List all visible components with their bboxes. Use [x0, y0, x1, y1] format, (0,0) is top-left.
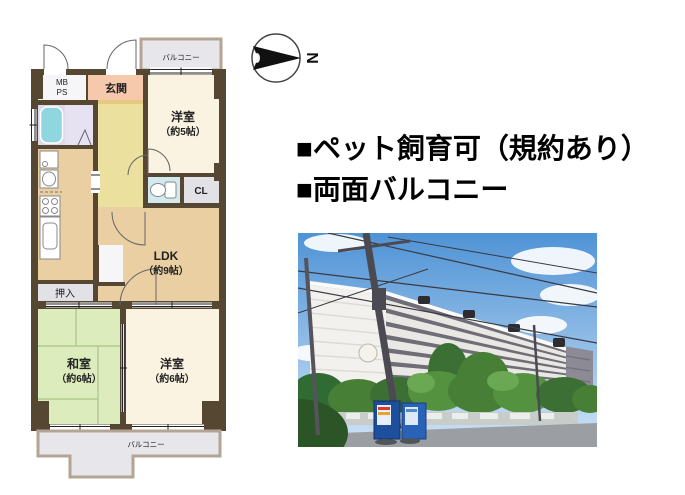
- toilet: [165, 182, 176, 198]
- room6-size: （約6帖）: [149, 372, 195, 385]
- highlight-bullets: ■ペット飼育可（規約あり） ■両面バルコニー: [296, 128, 684, 210]
- room6-name: 洋室: [160, 356, 184, 371]
- north-label: N: [303, 52, 320, 64]
- room-western-5: [148, 75, 219, 173]
- vending-machines: [374, 401, 426, 445]
- stove: [40, 196, 60, 216]
- oshiire-label: 押入: [55, 287, 75, 300]
- highlight-pets: ■ペット飼育可（規約あり）: [296, 128, 684, 169]
- building-photo: [298, 233, 597, 447]
- satellite-dish: [359, 344, 377, 362]
- room5-name: 洋室: [171, 109, 195, 124]
- ldk-closet: [99, 245, 123, 282]
- room5-size: （約5帖）: [160, 125, 206, 138]
- washitsu-size: （約6帖）: [56, 372, 102, 385]
- compass: N: [245, 30, 325, 92]
- highlight-balcony: ■両面バルコニー: [296, 169, 684, 210]
- balcony-bottom: バルコニー: [38, 431, 220, 477]
- ldk-name: LDK: [154, 249, 179, 263]
- bathtub: [41, 107, 63, 143]
- ldk-size: （約9帖）: [143, 264, 189, 277]
- balcony-bottom-label: バルコニー: [127, 440, 164, 449]
- balcony-top: バルコニー: [141, 39, 221, 70]
- floorplan: バルコニー: [28, 35, 230, 485]
- mb-label: MB: [56, 78, 68, 87]
- washitsu-name: 和室: [66, 356, 91, 371]
- cl-label: CL: [194, 186, 207, 197]
- genkan-label: 玄関: [105, 81, 127, 95]
- listing-image: バルコニー: [0, 0, 685, 495]
- balcony-top-label: バルコニー: [162, 53, 199, 62]
- ps-label: PS: [57, 88, 68, 97]
- genkan-step: [98, 100, 143, 104]
